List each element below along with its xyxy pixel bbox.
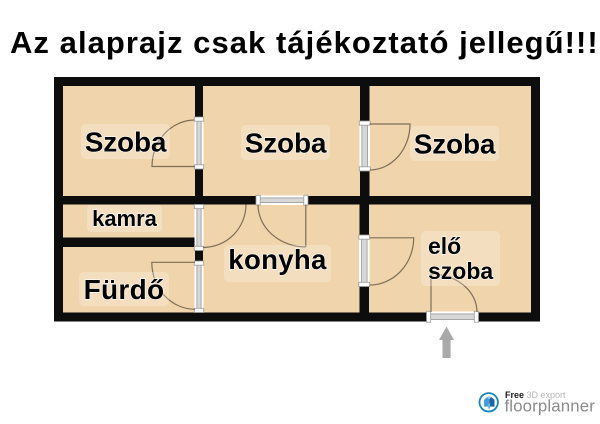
svg-text:konyha: konyha	[228, 244, 327, 275]
svg-text:floorplanner: floorplanner	[505, 397, 596, 416]
svg-text:Szoba: Szoba	[85, 126, 167, 157]
svg-text:Az alaprajz csak tájékoztató j: Az alaprajz csak tájékoztató jellegű!!!	[10, 25, 599, 60]
svg-text:elő: elő	[428, 233, 461, 259]
svg-text:szoba: szoba	[428, 258, 493, 284]
svg-text:Szoba: Szoba	[414, 128, 496, 159]
svg-text:Szoba: Szoba	[245, 127, 327, 158]
svg-text:Fürdő: Fürdő	[84, 274, 165, 305]
svg-text:kamra: kamra	[92, 206, 158, 231]
